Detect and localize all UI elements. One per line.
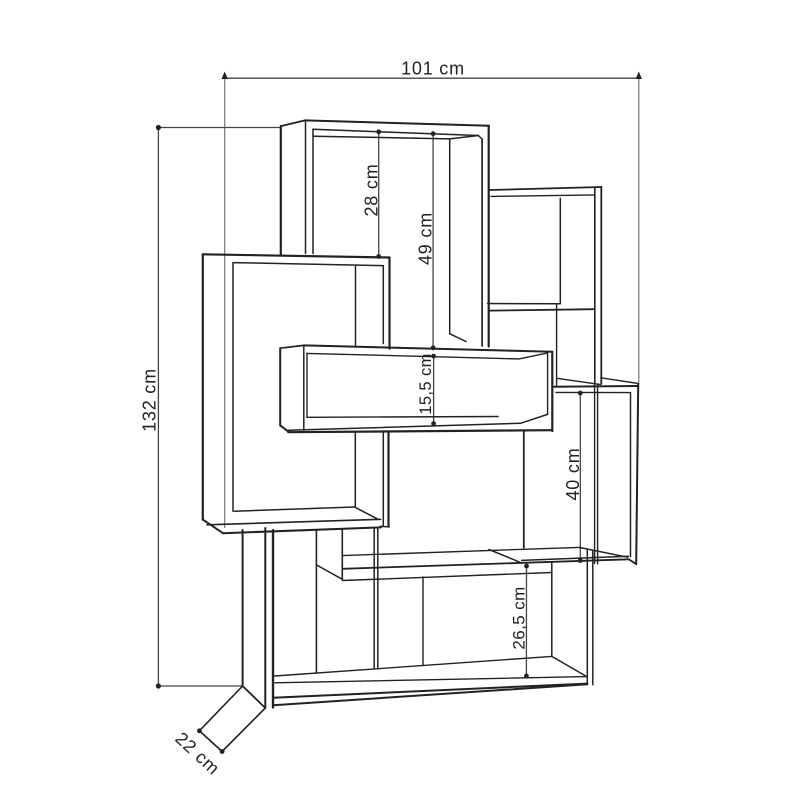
svg-text:101 cm: 101 cm [401,59,465,79]
svg-text:26,5 cm: 26,5 cm [510,586,529,649]
svg-text:28 cm: 28 cm [362,163,382,216]
svg-text:49 cm: 49 cm [416,212,436,265]
svg-text:15,5 cm: 15,5 cm [417,353,435,415]
svg-text:40 cm: 40 cm [563,447,583,500]
svg-text:132 cm: 132 cm [140,368,160,432]
